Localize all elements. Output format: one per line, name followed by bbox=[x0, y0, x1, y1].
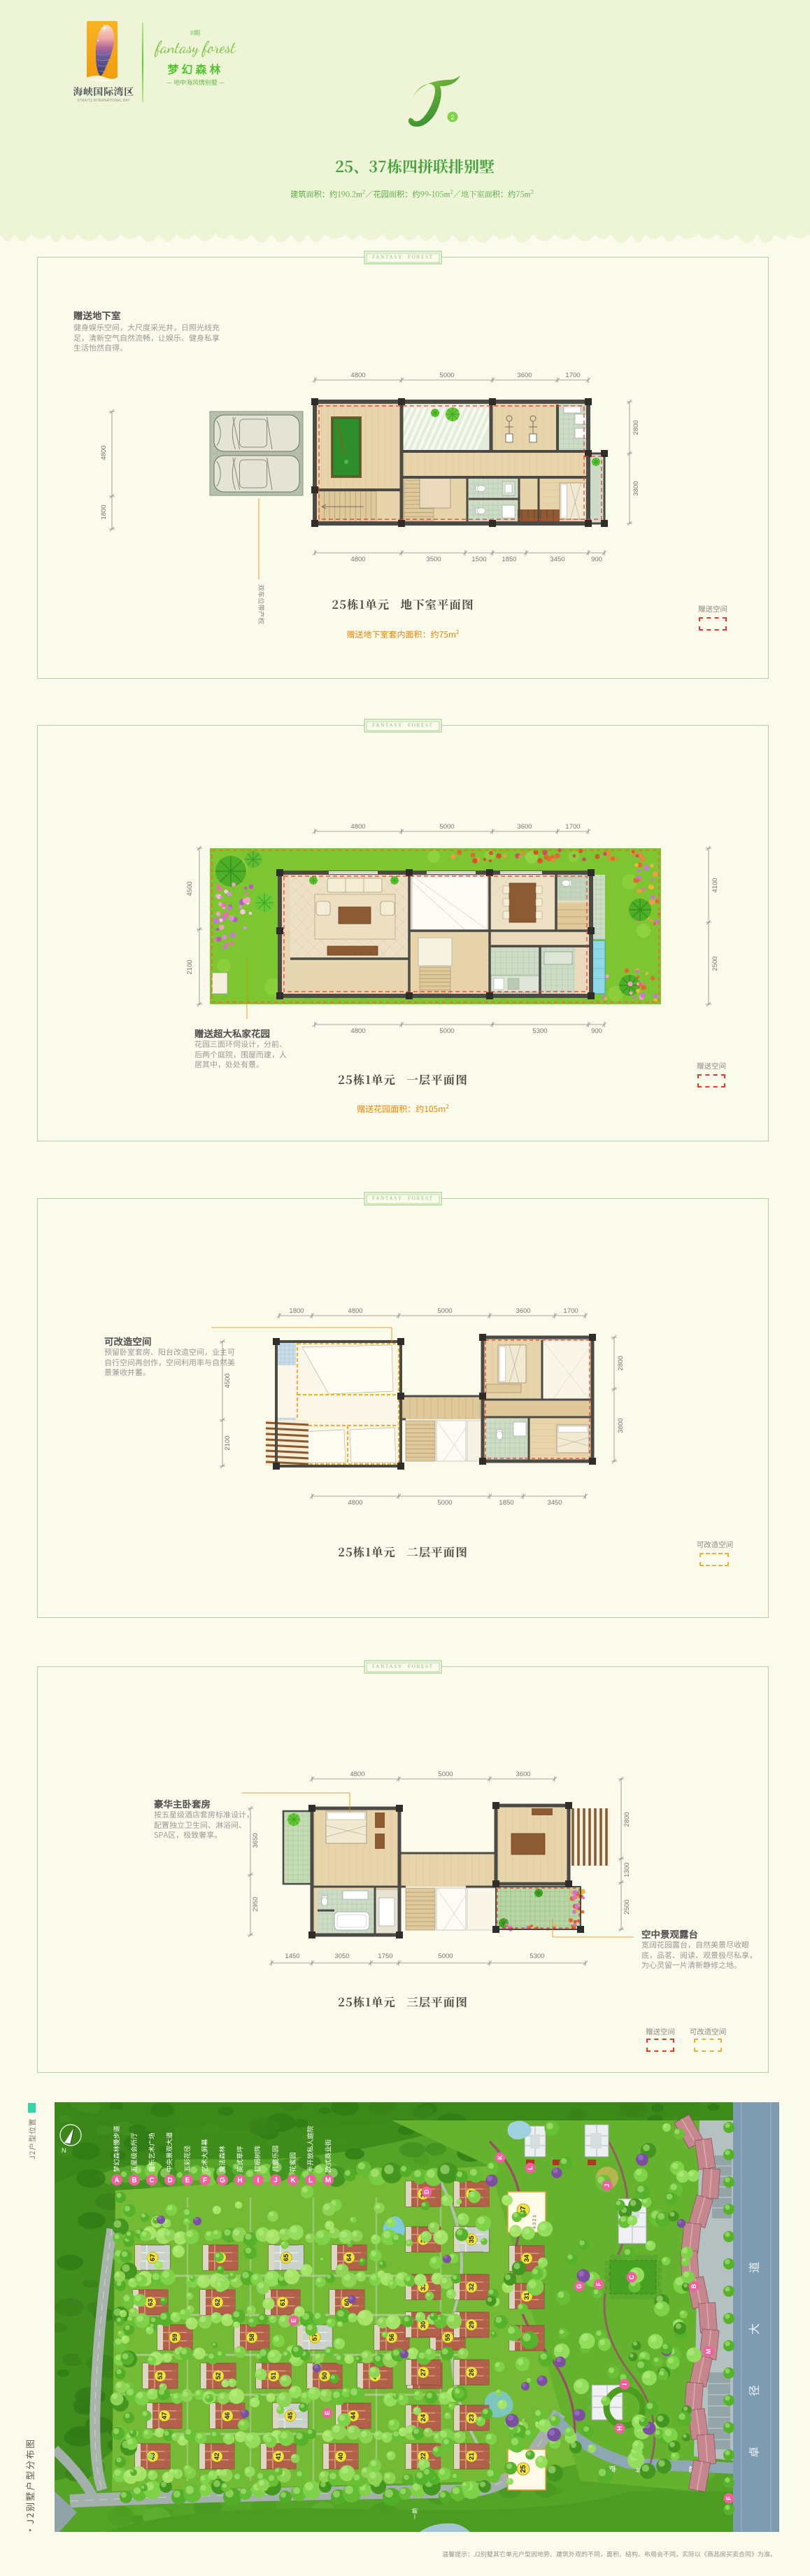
svg-text:61: 61 bbox=[279, 2298, 287, 2306]
svg-text:H: H bbox=[616, 2426, 623, 2431]
svg-text:2100: 2100 bbox=[186, 959, 194, 974]
svg-text:1500: 1500 bbox=[471, 556, 486, 563]
svg-text:46: 46 bbox=[224, 2412, 232, 2420]
svg-text:42: 42 bbox=[213, 2453, 221, 2461]
svg-text:道: 道 bbox=[745, 2262, 762, 2273]
svg-text:35: 35 bbox=[468, 2235, 476, 2243]
svg-text:F: F bbox=[725, 2496, 732, 2500]
svg-text:H: H bbox=[237, 2177, 242, 2185]
svg-text:1700: 1700 bbox=[563, 1307, 578, 1315]
svg-text:56: 56 bbox=[388, 2334, 396, 2342]
svg-text:4800: 4800 bbox=[350, 556, 365, 563]
svg-text:52: 52 bbox=[215, 2372, 222, 2380]
svg-text:5000: 5000 bbox=[439, 1027, 454, 1035]
svg-text:I: I bbox=[257, 2177, 260, 2185]
svg-text:2500: 2500 bbox=[623, 1899, 631, 1914]
svg-text:音乐艺术广场: 音乐艺术广场 bbox=[146, 2132, 156, 2172]
svg-text:5000: 5000 bbox=[438, 1771, 453, 1778]
svg-text:2100: 2100 bbox=[224, 1435, 232, 1450]
svg-text:53: 53 bbox=[157, 2372, 164, 2380]
svg-text:4800: 4800 bbox=[348, 1307, 362, 1315]
svg-text:26: 26 bbox=[468, 2369, 476, 2377]
svg-text:64: 64 bbox=[346, 2253, 353, 2261]
svg-text:1800: 1800 bbox=[289, 1307, 304, 1315]
svg-text:23: 23 bbox=[468, 2414, 476, 2422]
svg-text:3450: 3450 bbox=[547, 1499, 562, 1507]
svg-text:2: 2 bbox=[450, 114, 454, 121]
svg-text:4800: 4800 bbox=[348, 1499, 362, 1507]
svg-text:4 3 2 1: 4 3 2 1 bbox=[532, 2215, 537, 2229]
svg-text:55: 55 bbox=[444, 2333, 452, 2341]
svg-text:1700: 1700 bbox=[565, 823, 580, 831]
svg-text:五彩花径: 五彩花径 bbox=[182, 2145, 192, 2172]
svg-text:29: 29 bbox=[468, 2321, 476, 2329]
svg-text:1850: 1850 bbox=[502, 556, 516, 563]
svg-text:5000: 5000 bbox=[438, 1952, 453, 1960]
svg-text:59: 59 bbox=[171, 2334, 179, 2342]
svg-text:F: F bbox=[203, 2177, 207, 2185]
svg-text:4800: 4800 bbox=[350, 372, 365, 379]
svg-text:D: D bbox=[423, 2189, 430, 2194]
svg-text:3500: 3500 bbox=[426, 556, 441, 563]
svg-text:3450: 3450 bbox=[550, 556, 564, 563]
svg-text:45: 45 bbox=[287, 2412, 294, 2419]
svg-text:K: K bbox=[497, 2155, 504, 2160]
svg-text:5000: 5000 bbox=[439, 372, 454, 379]
svg-text:50: 50 bbox=[321, 2372, 329, 2380]
svg-text:K: K bbox=[290, 2177, 296, 2185]
svg-text:M: M bbox=[325, 2177, 331, 2185]
svg-text:花蜜园: 花蜜园 bbox=[287, 2152, 297, 2172]
svg-text:B: B bbox=[690, 2283, 697, 2288]
svg-text:62: 62 bbox=[214, 2299, 222, 2307]
svg-text:5300: 5300 bbox=[530, 1952, 544, 1960]
svg-text:五星级会所厅: 五星级会所厅 bbox=[129, 2132, 138, 2173]
svg-text:3600: 3600 bbox=[517, 823, 532, 831]
svg-text:1850: 1850 bbox=[499, 1499, 513, 1507]
svg-text:1300: 1300 bbox=[623, 1862, 631, 1877]
svg-text:棕榈树阵: 棕榈树阵 bbox=[253, 2145, 262, 2172]
svg-text:J: J bbox=[604, 2183, 611, 2187]
svg-text:英式草坪: 英式草坪 bbox=[234, 2146, 244, 2173]
svg-text:25: 25 bbox=[520, 2465, 527, 2473]
svg-text:2800: 2800 bbox=[632, 420, 640, 435]
svg-text:E: E bbox=[290, 2318, 297, 2323]
svg-text:1750: 1750 bbox=[378, 1952, 392, 1960]
svg-text:E: E bbox=[324, 2411, 331, 2415]
svg-text:3050: 3050 bbox=[334, 1952, 349, 1960]
svg-text:径: 径 bbox=[745, 2385, 762, 2396]
svg-text:65: 65 bbox=[283, 2253, 290, 2261]
svg-text:30: 30 bbox=[420, 2321, 427, 2329]
svg-text:L: L bbox=[308, 2177, 313, 2185]
svg-text:3600: 3600 bbox=[516, 1307, 530, 1315]
svg-text:C: C bbox=[628, 2274, 635, 2279]
svg-text:3800: 3800 bbox=[617, 1418, 625, 1433]
svg-text:J: J bbox=[273, 2177, 278, 2185]
svg-text:G: G bbox=[576, 2283, 583, 2288]
svg-text:4800: 4800 bbox=[350, 1771, 364, 1778]
svg-text:欧式商业街: 欧式商业街 bbox=[322, 2139, 332, 2172]
svg-text:2950: 2950 bbox=[252, 1896, 260, 1911]
svg-text:40: 40 bbox=[337, 2453, 345, 2461]
svg-text:F: F bbox=[595, 2282, 602, 2286]
svg-text:E: E bbox=[185, 2177, 190, 2185]
svg-text:24: 24 bbox=[420, 2414, 427, 2421]
svg-text:1700: 1700 bbox=[565, 372, 580, 379]
svg-text:一期: 一期 bbox=[411, 2508, 419, 2519]
svg-text:34: 34 bbox=[523, 2254, 531, 2262]
svg-text:A: A bbox=[114, 2177, 119, 2185]
svg-text:900: 900 bbox=[591, 556, 602, 563]
svg-text:2500: 2500 bbox=[711, 956, 719, 971]
svg-text:L: L bbox=[527, 2166, 534, 2170]
svg-text:27: 27 bbox=[420, 2369, 427, 2377]
svg-text:中央景观大道: 中央景观大道 bbox=[164, 2132, 174, 2172]
svg-text:B: B bbox=[132, 2177, 136, 2185]
svg-text:卓: 卓 bbox=[745, 2447, 762, 2458]
svg-text:3600: 3600 bbox=[516, 1771, 530, 1778]
svg-text:47: 47 bbox=[161, 2412, 169, 2420]
svg-text:5000: 5000 bbox=[437, 1499, 452, 1507]
svg-text:C: C bbox=[149, 2177, 154, 2185]
svg-text:半开放私人庭院: 半开放私人庭院 bbox=[305, 2125, 315, 2172]
svg-text:双车位带产权: 双车位带产权 bbox=[257, 584, 267, 625]
svg-text:900: 900 bbox=[591, 1027, 602, 1035]
svg-text:67: 67 bbox=[149, 2254, 157, 2262]
svg-text:魔法森林: 魔法森林 bbox=[217, 2146, 227, 2173]
svg-text:5000: 5000 bbox=[437, 1307, 452, 1315]
svg-text:艺术大屏幕: 艺术大屏幕 bbox=[199, 2139, 209, 2172]
svg-text:2800: 2800 bbox=[617, 1356, 625, 1370]
svg-text:2800: 2800 bbox=[623, 1812, 631, 1827]
svg-text:44: 44 bbox=[350, 2412, 357, 2419]
svg-text:32: 32 bbox=[468, 2283, 476, 2291]
svg-text:N: N bbox=[62, 2147, 66, 2154]
svg-text:4800: 4800 bbox=[350, 1027, 365, 1035]
svg-text:1800: 1800 bbox=[100, 505, 108, 519]
svg-text:D: D bbox=[167, 2177, 172, 2185]
svg-text:4800: 4800 bbox=[100, 445, 108, 460]
svg-text:41: 41 bbox=[275, 2452, 283, 2460]
svg-text:58: 58 bbox=[248, 2334, 256, 2342]
svg-text:4100: 4100 bbox=[711, 878, 719, 892]
svg-text:4500: 4500 bbox=[186, 881, 194, 896]
svg-text:51: 51 bbox=[270, 2372, 278, 2379]
svg-text:儿童乐园: 儿童乐园 bbox=[270, 2146, 280, 2172]
svg-text:1450: 1450 bbox=[285, 1952, 299, 1960]
svg-text:3800: 3800 bbox=[632, 481, 640, 495]
svg-text:梦幻森林慢步道: 梦幻森林慢步道 bbox=[111, 2125, 121, 2172]
svg-text:3600: 3600 bbox=[517, 372, 532, 379]
svg-text:大: 大 bbox=[745, 2323, 762, 2335]
svg-text:21: 21 bbox=[468, 2452, 476, 2460]
svg-text:G: G bbox=[220, 2177, 225, 2185]
svg-text:4800: 4800 bbox=[350, 823, 365, 831]
svg-text:63: 63 bbox=[147, 2299, 155, 2307]
svg-text:5300: 5300 bbox=[532, 1027, 547, 1035]
svg-text:5000: 5000 bbox=[439, 823, 454, 831]
svg-text:I: I bbox=[621, 2384, 628, 2386]
svg-text:M: M bbox=[705, 2349, 712, 2354]
